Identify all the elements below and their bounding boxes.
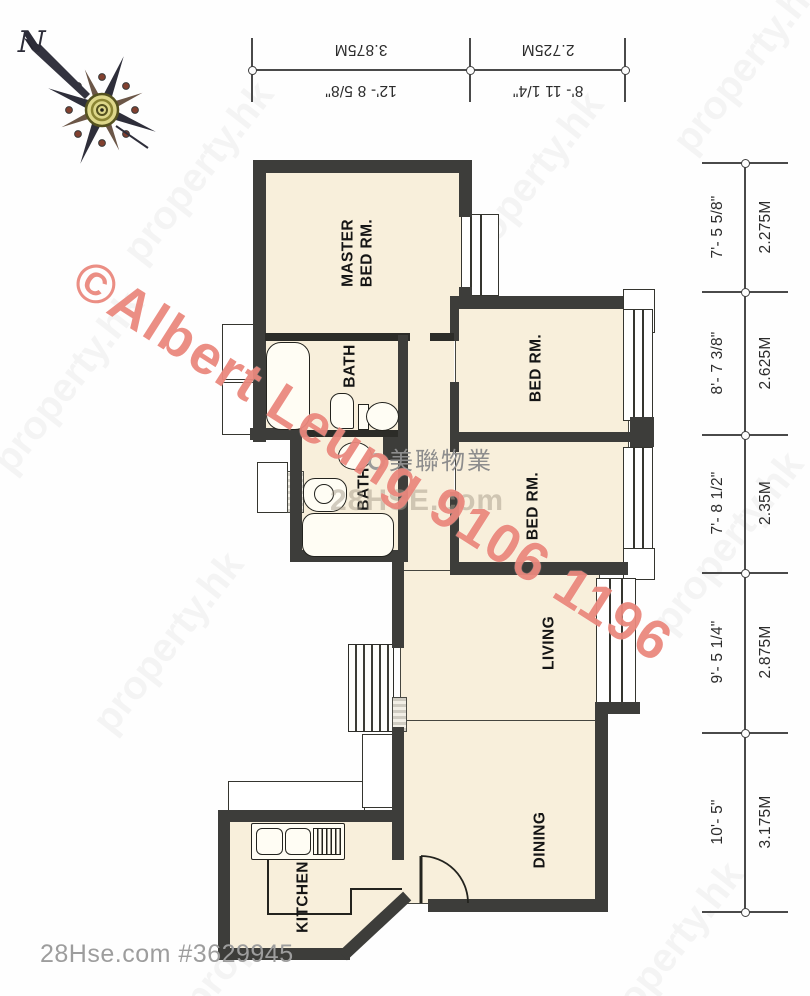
label-kitchen: KITCHEN [293, 861, 312, 933]
platform-beside-dining [362, 734, 395, 808]
dim-node [741, 159, 750, 168]
dim-node [741, 908, 750, 917]
compass-rose: N [10, 6, 170, 166]
dim-top-2-imperial: 8'- 11 1/4" [513, 81, 584, 99]
label-dining: DINING [530, 812, 549, 869]
wall-window-mullion [630, 417, 654, 447]
wall-dining-right [595, 710, 608, 912]
dim-right-2-metric: 2.625M [757, 337, 775, 390]
dim-node [621, 66, 630, 75]
bathtub-2 [302, 513, 394, 557]
dim-right-5-imperial: 10'- 5" [709, 799, 727, 844]
wall-kitchen-left [218, 810, 230, 960]
watermark-portal: property.hk [84, 543, 253, 742]
wall-kitchen-top [218, 810, 404, 822]
dim-node [741, 431, 750, 440]
dim-right-3-metric: 2.35M [757, 481, 775, 525]
dim-top-1-imperial: 12'- 8 5/8" [325, 81, 397, 99]
floorplan-canvas: property.hk property.hk property.hk prop… [0, 0, 810, 996]
dim-right-4-metric: 2.875M [757, 626, 775, 679]
dim-node [741, 729, 750, 738]
wall-kitchen-right [392, 822, 404, 860]
kitchen-counter-edge [350, 888, 402, 890]
window-strip-bed2 [623, 447, 653, 561]
dim-right-3-imperial: 7'- 8 1/2" [709, 471, 727, 534]
wall-bedrooms-top [450, 296, 623, 309]
wall-living-left-upper [392, 562, 404, 648]
ac-platform-3 [257, 462, 288, 513]
dim-top-1-metric: 3.875M [335, 40, 388, 58]
dim-right-2-imperial: 8'- 7 3/8" [709, 331, 727, 394]
dim-line-top [252, 69, 626, 71]
dim-right-1-metric: 2.275M [757, 201, 775, 254]
wall-bath2-left [290, 436, 302, 562]
kitchen-sink-unit [251, 823, 345, 860]
dim-top-2-metric: 2.725M [522, 40, 575, 58]
listing-credit: 28Hse.com #3629945 [40, 940, 294, 969]
label-master-bedroom: MASTER BED RM. [339, 219, 378, 287]
wall-master-door-stub [430, 333, 454, 341]
dim-node [466, 66, 475, 75]
wall-living-left-lower [392, 727, 404, 822]
label-bedroom-1: BED RM. [526, 334, 545, 402]
wall-master-right-upper [459, 160, 472, 217]
window-strip-bed1 [623, 309, 653, 421]
dim-node [741, 288, 750, 297]
label-living: LIVING [539, 616, 558, 670]
dim-right-4-imperial: 9'- 5 1/4" [709, 620, 727, 683]
watermark-portal: property.hk [584, 853, 753, 996]
label-master-line2: BED RM. [359, 219, 376, 287]
wall-master-top [253, 160, 472, 173]
dim-line-right [744, 163, 746, 912]
dim-node [248, 66, 257, 75]
wall-dining-bottom [428, 899, 608, 912]
watermark-portal: property.hk [664, 0, 810, 162]
wall-master-bottom [265, 333, 410, 341]
compass-north-label: N [17, 25, 47, 60]
dim-right-1-imperial: 7'- 5 5/8" [709, 195, 727, 258]
kitchen-counter-edge [267, 860, 269, 914]
yard-platform [228, 781, 365, 813]
dim-right-5-metric: 3.175M [757, 796, 775, 849]
louver-window-living [348, 644, 394, 732]
label-master-line1: MASTER [340, 219, 357, 287]
kitchen-counter-edge [350, 888, 352, 914]
bay-window-master [461, 214, 499, 296]
label-bath-1: BATH [340, 344, 359, 388]
dim-node [741, 569, 750, 578]
